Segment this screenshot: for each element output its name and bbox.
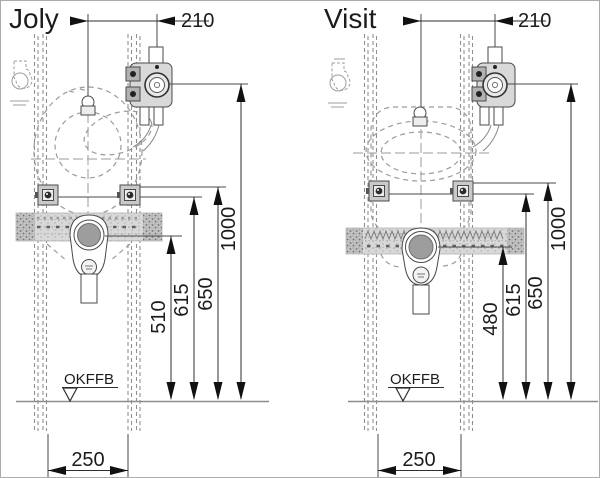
- dim-value-210: 210: [181, 10, 214, 32]
- wall-bracket-left: [366, 181, 389, 201]
- dim-value-1000: 1000: [218, 207, 240, 252]
- floor-label: OKFFB: [64, 371, 114, 388]
- faucet-hole: [81, 96, 95, 115]
- dim-height-main: 1000: [169, 84, 248, 400]
- dim-rail-spacing: 250: [48, 434, 128, 477]
- dim-value-210: 210: [518, 10, 551, 32]
- dim-value-480: 480: [480, 302, 502, 335]
- floor-datum: OKFFB: [388, 371, 444, 401]
- panel-visit: Visit: [301, 1, 600, 478]
- technical-drawing: Joly: [0, 0, 600, 478]
- dim-rail-spacing: 250: [378, 434, 461, 477]
- dim-value-1000: 1000: [548, 207, 570, 252]
- dim-height-drain: 480: [438, 247, 512, 400]
- page-title-joly: Joly: [9, 3, 59, 34]
- page-title-visit: Visit: [324, 3, 377, 34]
- dim-height-drain: 510: [105, 236, 182, 400]
- wall-bracket-right: [450, 181, 473, 201]
- wall-bracket-right: [117, 185, 140, 205]
- valve-unit: [472, 47, 515, 151]
- dim-value-615: 615: [171, 283, 193, 316]
- panel-joly: Joly: [1, 1, 301, 478]
- dim-height-rail-top: 650: [525, 183, 553, 400]
- dim-value-250: 250: [71, 449, 104, 471]
- faucet-hole: [413, 107, 427, 126]
- dim-height-brackets: 615: [171, 197, 199, 400]
- dim-height-brackets: 615: [503, 194, 531, 400]
- dim-height-rail-top: 650: [195, 187, 223, 400]
- bidet-side-view-icon: [10, 61, 32, 105]
- bidet-side-view-icon: [328, 59, 350, 107]
- floor-datum: OKFFB: [62, 371, 118, 401]
- dim-value-510: 510: [148, 300, 170, 333]
- floor-label: OKFFB: [390, 371, 440, 388]
- dim-value-650: 650: [195, 277, 217, 310]
- dim-value-650: 650: [525, 276, 547, 309]
- dim-value-615: 615: [503, 283, 525, 316]
- wall-bracket-left: [35, 185, 58, 205]
- dim-value-250: 250: [402, 449, 435, 471]
